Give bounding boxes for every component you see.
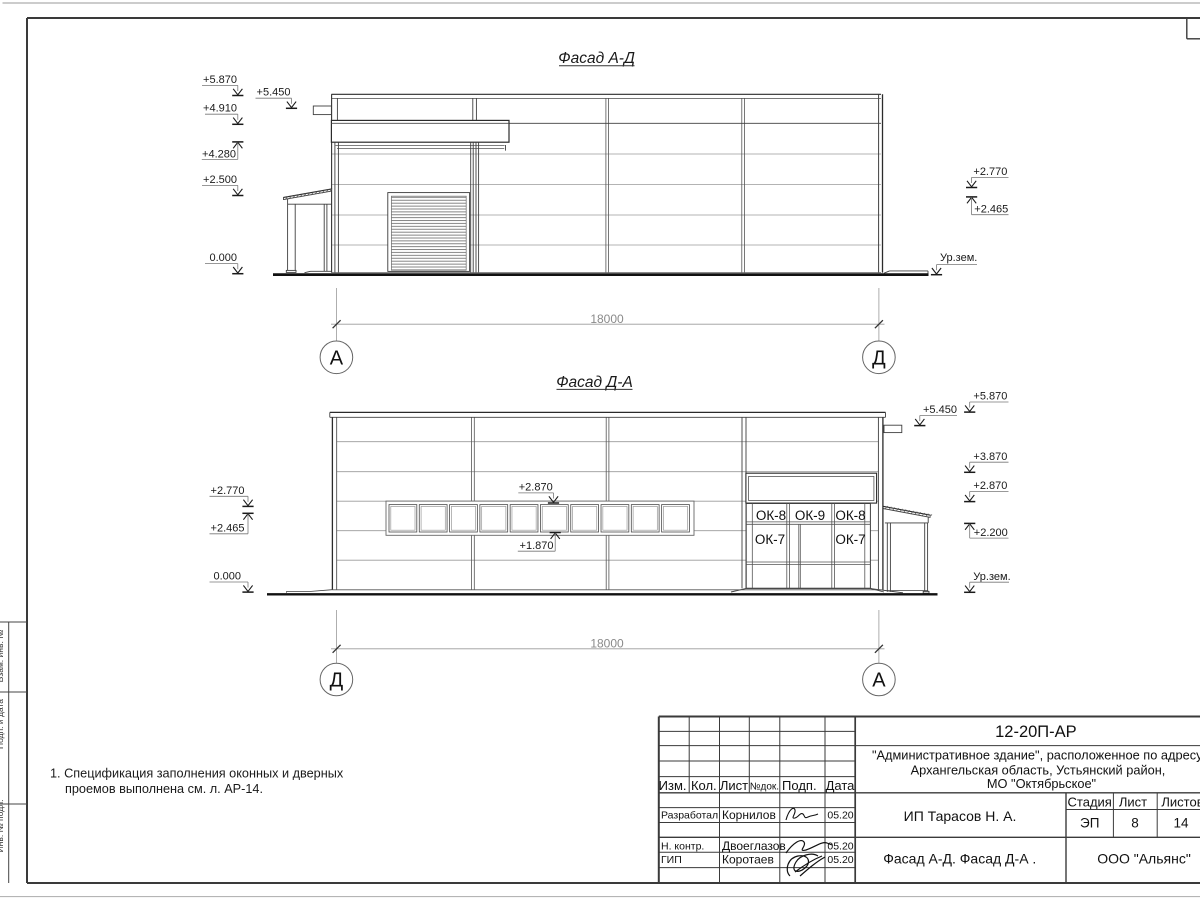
svg-text:А: А [872,670,886,692]
svg-text:ОК-9: ОК-9 [795,508,825,523]
svg-text:Д: Д [872,347,886,369]
svg-text:ОК-7: ОК-7 [755,532,785,547]
svg-text:Кол.: Кол. [691,778,717,793]
svg-text:Фасад А-Д. Фасад Д-А .: Фасад А-Д. Фасад Д-А . [883,850,1036,866]
svg-text:+4.280: +4.280 [202,148,236,160]
svg-text:+5.450: +5.450 [257,86,291,98]
svg-text:12-20П-АР: 12-20П-АР [995,723,1077,741]
svg-text:ОК-8: ОК-8 [756,508,786,523]
svg-text:Взам. инв. №: Взам. инв. № [0,630,5,683]
svg-text:18000: 18000 [590,637,624,651]
svg-text:05.20: 05.20 [827,854,853,866]
svg-text:Корнилов: Корнилов [722,808,776,822]
svg-text:+2.870: +2.870 [519,482,553,494]
svg-text:+2.465: +2.465 [211,523,245,535]
svg-text:МО "Октябрьское": МО "Октябрьское" [987,776,1096,791]
svg-text:Подп. и дата: Подп. и дата [0,699,5,749]
svg-text:+3.870: +3.870 [973,451,1007,463]
svg-text:А: А [330,347,344,369]
svg-text:18000: 18000 [590,312,624,326]
svg-text:Листов: Листов [1161,795,1200,810]
svg-text:ИП Тарасов Н. А.: ИП Тарасов Н. А. [904,808,1017,824]
svg-text:Коротаев: Коротаев [722,852,774,866]
svg-text:0.000: 0.000 [213,571,241,583]
svg-text:1. Спецификация заполнения око: 1. Спецификация заполнения оконных и две… [50,766,344,780]
svg-text:+2.500: +2.500 [203,174,237,186]
svg-text:ЭП: ЭП [1080,816,1099,831]
svg-text:Изм.: Изм. [659,778,687,793]
svg-text:Дата: Дата [826,778,856,793]
svg-text:Лист: Лист [1119,795,1147,810]
svg-text:Разработал: Разработал [661,809,718,821]
svg-text:ООО "Альянс": ООО "Альянс" [1097,850,1191,866]
svg-text:05.20: 05.20 [827,810,853,822]
svg-text:+4.910: +4.910 [203,103,237,115]
svg-text:+5.450: +5.450 [923,404,957,416]
svg-text:+2.870: +2.870 [973,480,1007,492]
svg-text:Фасад А-Д: Фасад А-Д [558,50,635,67]
svg-text:проемов выполнена см. л. АР-14: проемов выполнена см. л. АР-14. [65,782,263,796]
svg-text:№док.: №док. [750,782,779,793]
svg-text:Двоеглазов: Двоеглазов [722,839,786,853]
svg-text:05.20: 05.20 [827,841,853,853]
svg-text:+2.770: +2.770 [211,485,245,497]
svg-text:Инв. № подл.: Инв. № подл. [0,800,5,853]
svg-text:Подп.: Подп. [782,778,817,793]
svg-text:Фасад Д-А: Фасад Д-А [556,374,633,391]
svg-text:+5.870: +5.870 [973,391,1007,403]
svg-text:+2.200: +2.200 [974,527,1008,539]
svg-text:0.000: 0.000 [209,252,237,264]
svg-text:Ур.зем.: Ур.зем. [940,252,977,264]
svg-text:Ур.зем.: Ур.зем. [973,571,1010,583]
svg-text:+5.870: +5.870 [203,74,237,86]
svg-text:ОК-7: ОК-7 [835,532,865,547]
svg-text:Д: Д [330,670,344,692]
svg-text:14: 14 [1173,816,1189,831]
svg-text:+2.770: +2.770 [973,166,1007,178]
svg-text:8: 8 [1131,816,1139,831]
svg-text:+1.870: +1.870 [520,540,554,552]
svg-text:+2.465: +2.465 [974,203,1008,215]
svg-text:Н. контр.: Н. контр. [661,841,704,853]
svg-text:Стадия: Стадия [1068,795,1112,810]
svg-text:ОК-8: ОК-8 [835,508,865,523]
svg-text:Лист: Лист [720,778,748,793]
svg-text:ГИП: ГИП [661,854,682,866]
svg-text:"Административное здание", рас: "Административное здание", расположенное… [872,748,1200,763]
